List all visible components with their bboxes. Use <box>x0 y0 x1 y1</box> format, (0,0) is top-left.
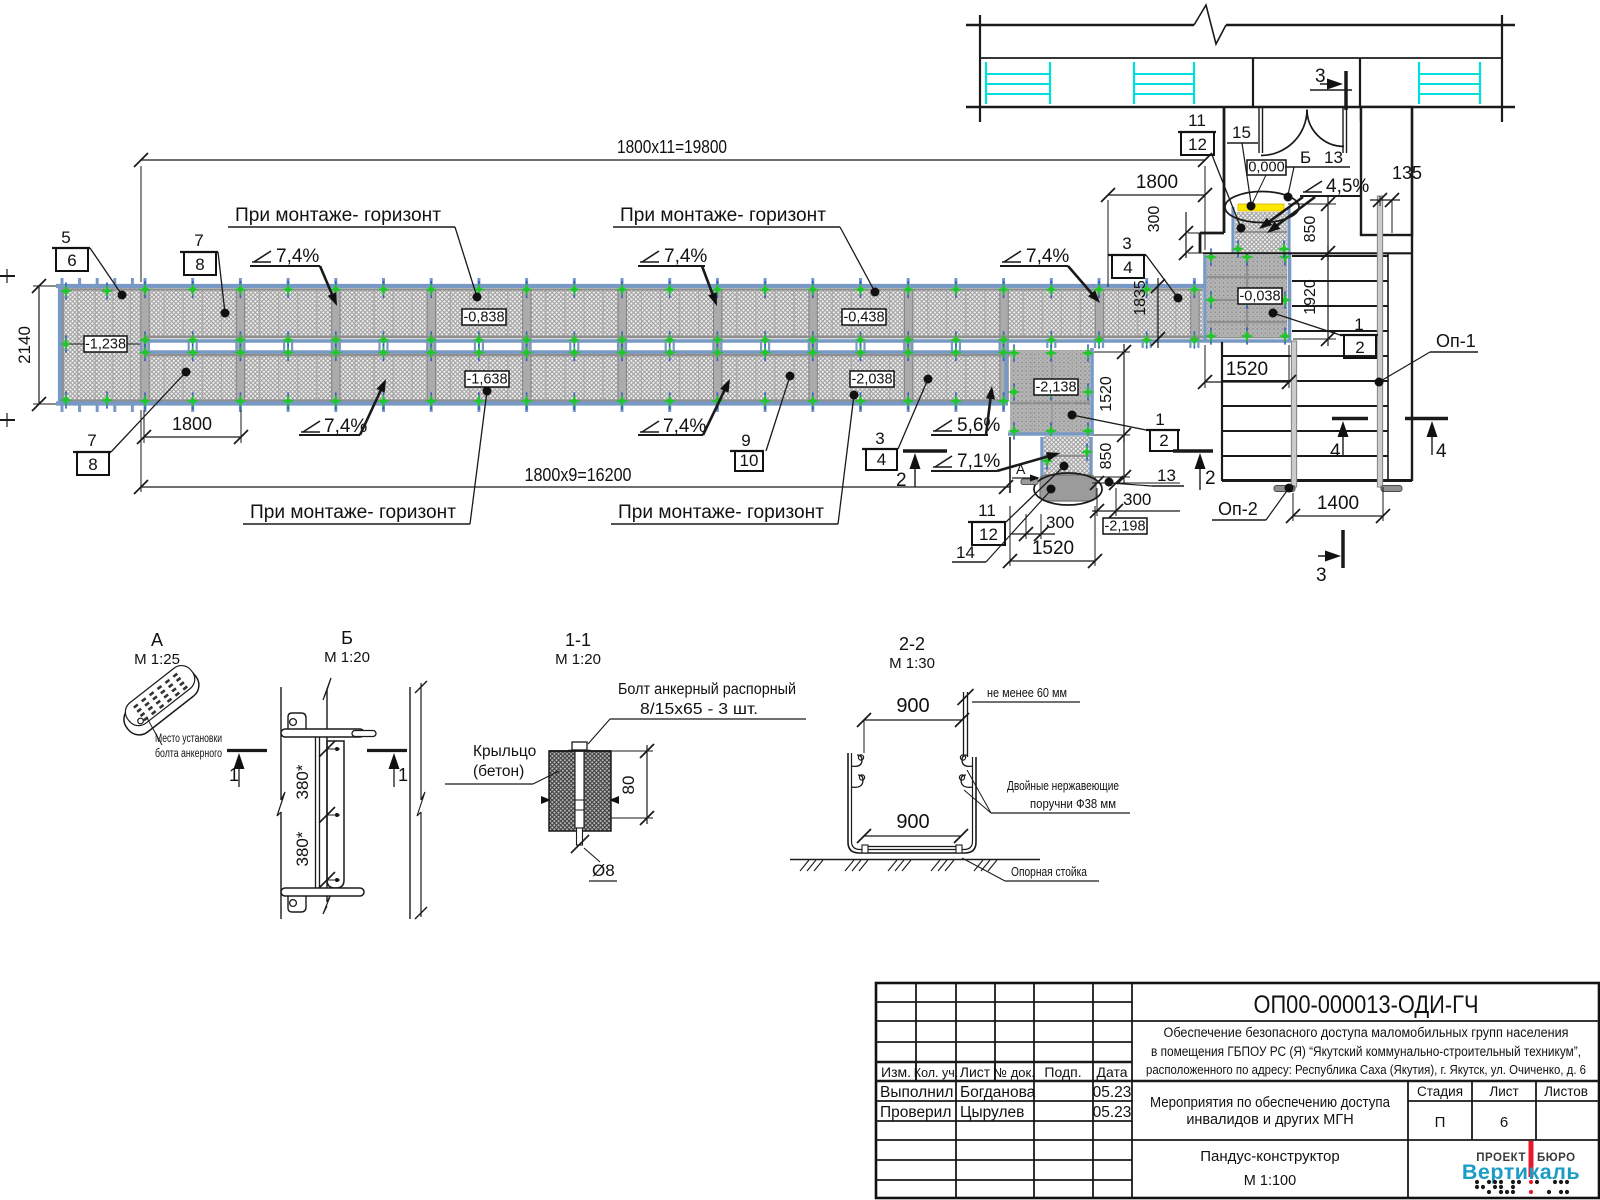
svg-text:Богданова: Богданова <box>960 1084 1036 1101</box>
svg-text:Мероприятия по обеспечению дос: Мероприятия по обеспечению доступа <box>1150 1095 1391 1111</box>
svg-text:10: 10 <box>740 451 759 470</box>
svg-text:380*: 380* <box>293 831 312 866</box>
svg-text:-0,438: -0,438 <box>843 310 884 326</box>
svg-text:Б: Б <box>1300 148 1311 167</box>
svg-text:расположенного по адресу: Респ: расположенного по адресу: Республика Сах… <box>1146 1062 1586 1077</box>
svg-text:7,1%: 7,1% <box>957 451 1000 472</box>
svg-text:1800x11=19800: 1800x11=19800 <box>617 137 727 157</box>
svg-text:13: 13 <box>1157 466 1176 485</box>
svg-text:Подп.: Подп. <box>1044 1064 1081 1080</box>
svg-text:300: 300 <box>1146 206 1163 233</box>
svg-text:1: 1 <box>229 765 239 785</box>
svg-text:М 1:20: М 1:20 <box>324 649 370 666</box>
svg-text:4,5%: 4,5% <box>1326 176 1369 197</box>
svg-text:Оп-2: Оп-2 <box>1218 499 1258 519</box>
svg-text:1400: 1400 <box>1317 493 1359 514</box>
svg-text:поручни Ф38 мм: поручни Ф38 мм <box>1030 796 1116 811</box>
svg-text:11: 11 <box>978 501 996 520</box>
svg-text:7,4%: 7,4% <box>276 246 319 267</box>
svg-text:7: 7 <box>194 231 203 250</box>
svg-text:Опорная стойка: Опорная стойка <box>1011 864 1088 879</box>
svg-text:7,4%: 7,4% <box>664 246 707 267</box>
svg-text:-0,038: -0,038 <box>1239 289 1280 305</box>
svg-text:2: 2 <box>1159 431 1168 450</box>
svg-text:не менее 60 мм: не менее 60 мм <box>987 685 1067 700</box>
svg-text:Кол. уч.: Кол. уч. <box>914 1066 958 1080</box>
svg-text:14: 14 <box>956 543 975 562</box>
svg-text:ОП00-000013-ОДИ-ГЧ: ОП00-000013-ОДИ-ГЧ <box>1254 991 1479 1019</box>
svg-text:1520: 1520 <box>1098 376 1115 412</box>
svg-text:380*: 380* <box>293 764 312 799</box>
svg-text:3: 3 <box>1316 565 1327 586</box>
svg-text:3: 3 <box>1315 66 1326 87</box>
svg-text:Обеспечение безопасного доступ: Обеспечение безопасного доступа маломоби… <box>1164 1025 1569 1040</box>
svg-text:05.23: 05.23 <box>1093 1104 1132 1121</box>
svg-text:850: 850 <box>1302 216 1319 243</box>
svg-text:900: 900 <box>896 811 929 833</box>
svg-text:При монтаже- горизонт: При монтаже- горизонт <box>235 205 441 226</box>
svg-text:1835: 1835 <box>1132 280 1149 316</box>
svg-text:Болт анкерный распорный: Болт анкерный распорный <box>618 681 796 698</box>
svg-text:Лист: Лист <box>960 1064 991 1080</box>
svg-text:М 1:30: М 1:30 <box>889 655 935 672</box>
svg-text:1520: 1520 <box>1226 359 1268 380</box>
svg-text:Пандус-конструктор: Пандус-конструктор <box>1200 1148 1340 1165</box>
svg-text:15: 15 <box>1232 123 1251 142</box>
svg-text:Вертикаль: Вертикаль <box>1462 1160 1580 1184</box>
svg-text:(бетон): (бетон) <box>473 763 524 780</box>
svg-text:Оп-1: Оп-1 <box>1436 331 1476 351</box>
svg-text:0,000: 0,000 <box>1248 160 1284 176</box>
svg-text:1: 1 <box>1354 315 1363 334</box>
svg-text:11: 11 <box>1188 111 1206 130</box>
svg-text:-2,198: -2,198 <box>1104 519 1145 535</box>
svg-text:135: 135 <box>1392 163 1422 183</box>
svg-text:8/15х65 - 3 шт.: 8/15х65 - 3 шт. <box>640 701 758 718</box>
svg-text:Цырулев: Цырулев <box>960 1104 1024 1121</box>
svg-text:12: 12 <box>1188 135 1207 154</box>
svg-text:Двойные нержавеющие: Двойные нержавеющие <box>1007 778 1119 793</box>
svg-text:-2,138: -2,138 <box>1035 380 1076 396</box>
svg-text:2: 2 <box>1205 468 1216 489</box>
svg-text:Выполнил: Выполнил <box>880 1084 953 1101</box>
svg-text:Стадия: Стадия <box>1417 1084 1463 1099</box>
svg-text:№ док.: № док. <box>993 1065 1035 1080</box>
svg-text:1920: 1920 <box>1302 279 1319 315</box>
svg-text:инвалидов и других МГН: инвалидов и других МГН <box>1186 1112 1353 1128</box>
svg-text:300: 300 <box>1123 490 1151 509</box>
svg-text:12: 12 <box>979 525 998 544</box>
svg-text:в помещения ГБПОУ РС (Я) “Якут: в помещения ГБПОУ РС (Я) “Якутский комму… <box>1151 1044 1581 1059</box>
svg-text:7,4%: 7,4% <box>1026 246 1069 267</box>
svg-text:850: 850 <box>1098 443 1115 470</box>
svg-text:900: 900 <box>896 695 929 717</box>
svg-text:Лист: Лист <box>1489 1084 1518 1099</box>
svg-text:Дата: Дата <box>1096 1064 1127 1080</box>
svg-text:4: 4 <box>1436 441 1447 462</box>
svg-text:5,6%: 5,6% <box>957 415 1000 436</box>
svg-text:4: 4 <box>877 450 886 469</box>
svg-text:болта анкерного: болта анкерного <box>155 748 222 760</box>
svg-text:-1,238: -1,238 <box>85 337 126 353</box>
svg-text:1800: 1800 <box>1136 172 1178 193</box>
svg-text:2-2: 2-2 <box>899 634 925 654</box>
svg-text:А: А <box>1016 461 1026 477</box>
svg-text:При монтаже- горизонт: При монтаже- горизонт <box>250 502 456 523</box>
svg-text:3: 3 <box>1122 234 1131 253</box>
svg-text:13: 13 <box>1324 148 1343 167</box>
svg-text:Изм.: Изм. <box>881 1064 911 1080</box>
svg-text:8: 8 <box>195 255 204 274</box>
svg-text:-0,838: -0,838 <box>463 310 504 326</box>
svg-text:1800: 1800 <box>172 414 212 434</box>
svg-text:М 1:20: М 1:20 <box>555 651 601 668</box>
svg-text:А: А <box>151 630 163 650</box>
svg-text:7: 7 <box>87 431 96 450</box>
svg-text:М 1:25: М 1:25 <box>134 651 180 668</box>
svg-text:Ø8: Ø8 <box>592 861 615 880</box>
svg-text:300: 300 <box>1046 513 1074 532</box>
svg-text:3: 3 <box>875 429 884 448</box>
svg-text:Место установки: Место установки <box>155 733 222 745</box>
svg-text:Б: Б <box>341 628 353 648</box>
svg-text:-1,638: -1,638 <box>466 372 507 388</box>
svg-text:-2,038: -2,038 <box>851 372 892 388</box>
svg-text:1: 1 <box>398 765 408 785</box>
svg-text:2140: 2140 <box>15 326 34 364</box>
svg-text:При монтаже- горизонт: При монтаже- горизонт <box>618 502 824 523</box>
svg-text:2: 2 <box>896 470 907 491</box>
svg-text:П: П <box>1435 1114 1446 1131</box>
svg-text:9: 9 <box>741 431 750 450</box>
svg-text:7,4%: 7,4% <box>663 416 706 437</box>
svg-text:4: 4 <box>1123 258 1132 277</box>
svg-text:М 1:100: М 1:100 <box>1244 1173 1296 1189</box>
svg-text:80: 80 <box>619 776 638 795</box>
svg-text:6: 6 <box>67 251 76 270</box>
svg-text:1800x9=16200: 1800x9=16200 <box>525 465 632 485</box>
svg-text:05.23: 05.23 <box>1093 1084 1132 1101</box>
svg-text:Крыльцо: Крыльцо <box>473 743 536 760</box>
svg-text:1: 1 <box>1155 410 1164 429</box>
svg-text:5: 5 <box>61 228 70 247</box>
svg-text:1-1: 1-1 <box>565 630 591 650</box>
svg-text:4: 4 <box>1330 441 1341 462</box>
svg-text:8: 8 <box>88 455 97 474</box>
svg-text:2: 2 <box>1355 338 1364 357</box>
svg-text:При монтаже- горизонт: При монтаже- горизонт <box>620 205 826 226</box>
svg-text:6: 6 <box>1500 1114 1508 1131</box>
svg-text:Проверил: Проверил <box>880 1104 951 1121</box>
svg-text:Листов: Листов <box>1544 1084 1588 1099</box>
svg-text:1520: 1520 <box>1032 538 1074 559</box>
